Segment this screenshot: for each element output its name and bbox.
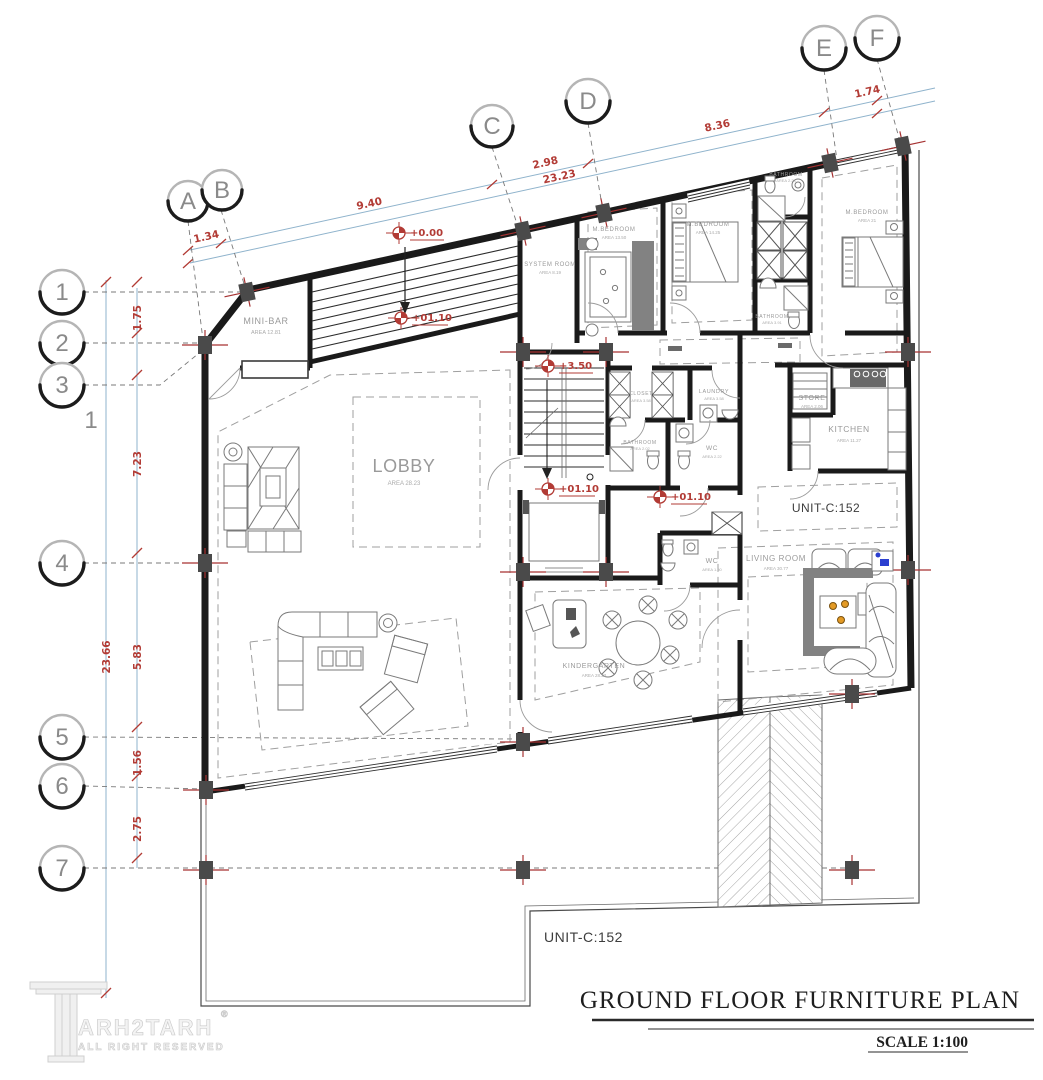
room-label-bedroom-left: M.BEDROOMAREA 13.50 <box>592 227 635 240</box>
svg-text:4: 4 <box>55 550 68 577</box>
svg-text:LIVING ROOM: LIVING ROOM <box>746 554 806 563</box>
svg-text:AREA 13.50: AREA 13.50 <box>602 235 627 240</box>
svg-text:M.BEDROOM: M.BEDROOM <box>592 227 635 233</box>
unit-label-exterior: UNIT-C:152 <box>544 929 623 945</box>
svg-text:SYSTEM ROOM: SYSTEM ROOM <box>524 262 576 268</box>
drawing-title: GROUND FLOOR FURNITURE PLAN <box>580 987 1020 1014</box>
svg-text:AREA 3.58: AREA 3.58 <box>704 396 724 401</box>
furniture-kindergarten <box>526 596 687 689</box>
svg-text:AREA 21: AREA 21 <box>858 218 877 223</box>
floor-plan-page: 1.34 9.40 2.98 23.23 8.36 1.74 1.75 7.23… <box>0 0 1043 1080</box>
svg-text:2: 2 <box>55 330 68 357</box>
grid-bubble-1: 1 <box>40 270 84 314</box>
watermark-registered: ® <box>221 1009 230 1019</box>
svg-text:M.BEDROOM: M.BEDROOM <box>686 222 729 228</box>
dim-left-12: 1.75 <box>132 305 144 331</box>
room-label-kitchen: KITCHENAREA 11.27 <box>828 424 870 443</box>
dim-left-67: 2.75 <box>132 816 144 842</box>
svg-text:1: 1 <box>55 279 68 306</box>
svg-text:+01.10: +01.10 <box>559 484 599 495</box>
dim-top-cd: 2.98 <box>531 154 559 171</box>
stair-core <box>523 368 605 572</box>
dim-top-bc: 9.40 <box>355 195 383 212</box>
svg-text:CLOSET: CLOSET <box>629 391 653 397</box>
svg-text:STORE: STORE <box>799 395 826 402</box>
room-label-wc-kinder: WCAREA 1.50 <box>702 558 722 572</box>
unit-label-interior: UNIT-C:152 <box>792 501 860 515</box>
svg-text:+01.10: +01.10 <box>671 492 711 503</box>
svg-text:+01.10: +01.10 <box>412 313 452 324</box>
grid-bubble-b: B <box>202 170 242 210</box>
svg-text:D: D <box>579 88 596 115</box>
room-label-lobby: LOBBYAREA 28.23 <box>372 456 435 487</box>
svg-text:AREA 3.58: AREA 3.58 <box>631 398 651 403</box>
svg-text:LOBBY: LOBBY <box>372 456 435 476</box>
ramp-hatch <box>718 695 822 907</box>
svg-text:7: 7 <box>55 855 68 882</box>
grid-bubble-5: 5 <box>40 715 84 759</box>
svg-text:AREA 8.19: AREA 8.19 <box>539 270 562 275</box>
grid-bubble-3: 3 <box>40 363 84 407</box>
furniture-lobby-sofa <box>224 443 301 552</box>
dim-top-ef: 1.74 <box>853 83 881 100</box>
room-label-wc-center: WCAREA 2.22 <box>702 445 722 459</box>
elevator <box>523 500 605 572</box>
exterior-stairs <box>312 246 518 349</box>
svg-text:AREA 2.23: AREA 2.23 <box>776 178 796 183</box>
svg-text:+0.00: +0.00 <box>410 228 443 239</box>
room-label-systemroom: SYSTEM ROOMAREA 8.19 <box>524 262 576 275</box>
room-label-minibar: MINI-BARAREA 12.81 <box>243 316 288 336</box>
svg-text:AREA 30.77: AREA 30.77 <box>764 566 789 571</box>
svg-text:KINDERGARTEN: KINDERGARTEN <box>563 663 626 670</box>
axis-note: 1 <box>84 407 97 434</box>
grid-bubble-d: D <box>566 79 610 123</box>
svg-text:F: F <box>870 25 885 52</box>
grid-bubble-4: 4 <box>40 541 84 585</box>
svg-text:AREA 2.22: AREA 2.22 <box>702 454 722 459</box>
svg-text:B: B <box>214 177 230 204</box>
grid-bubble-6: 6 <box>40 764 84 808</box>
furniture-minibar <box>242 361 308 378</box>
svg-text:A: A <box>180 188 196 215</box>
watermark-brand: ARH2TARH <box>78 1015 213 1040</box>
svg-text:AREA 28.23: AREA 28.23 <box>582 673 607 678</box>
svg-text:AREA 2.06: AREA 2.06 <box>801 404 824 409</box>
elevation-2: +3.50 <box>535 355 593 377</box>
svg-text:WC: WC <box>706 445 718 452</box>
dim-top-ab: 1.34 <box>192 228 220 245</box>
grid-bubble-f: F <box>855 16 899 60</box>
title-block: GROUND FLOOR FURNITURE PLAN SCALE 1:100 <box>580 987 1034 1052</box>
svg-text:E: E <box>816 35 832 62</box>
svg-text:AREA 2.02: AREA 2.02 <box>630 446 650 451</box>
svg-text:5: 5 <box>55 724 68 751</box>
elevation-0: +0.00 <box>386 222 444 244</box>
watermark-logo: ARH2TARH ® ALL RIGHT RESERVED <box>30 982 230 1062</box>
svg-text:+3.50: +3.50 <box>559 361 592 372</box>
elevation-3: +01.10 <box>535 478 599 500</box>
svg-text:AREA 11.27: AREA 11.27 <box>837 438 862 443</box>
room-label-laundry: LAUNDRYAREA 3.58 <box>699 389 729 401</box>
svg-text:LAUNDRY: LAUNDRY <box>699 389 729 395</box>
dim-left-34: 7.23 <box>132 451 144 477</box>
svg-text:AREA 14.25: AREA 14.25 <box>696 230 721 235</box>
furniture-bed-right <box>842 221 903 303</box>
room-label-bathroom-right: BATHROOMAREA 3.91 <box>755 314 788 325</box>
elevation-1: +01.10 <box>388 307 452 329</box>
grid-bubble-e: E <box>802 26 846 70</box>
room-label-bedroom-right: M.BEDROOMAREA 21 <box>845 210 888 223</box>
svg-text:AREA 3.91: AREA 3.91 <box>762 320 782 325</box>
furniture-kitchen <box>792 368 906 470</box>
furniture-l-sofa <box>278 612 428 735</box>
svg-text:M.BEDROOM: M.BEDROOM <box>845 210 888 216</box>
dim-left-56: 1.56 <box>132 750 144 776</box>
grid-bubble-2: 2 <box>40 321 84 365</box>
grid-bubble-7: 7 <box>40 846 84 890</box>
room-label-closet: CLOSETAREA 3.58 <box>629 391 653 403</box>
svg-text:C: C <box>483 113 500 140</box>
dim-left-45: 5.83 <box>132 644 144 670</box>
furniture-living-room <box>803 549 896 677</box>
watermark-tagline: ALL RIGHT RESERVED <box>78 1042 225 1053</box>
floor-plan-canvas: 1.34 9.40 2.98 23.23 8.36 1.74 1.75 7.23… <box>0 0 1043 1080</box>
grid-bubble-c: C <box>471 105 513 147</box>
room-label-livingroom: LIVING ROOMAREA 30.77 <box>746 554 806 571</box>
svg-text:MINI-BAR: MINI-BAR <box>243 316 288 326</box>
dim-left-overall: 23.66 <box>101 640 113 673</box>
svg-text:WC: WC <box>706 558 719 565</box>
svg-text:AREA 12.81: AREA 12.81 <box>251 330 281 336</box>
svg-text:3: 3 <box>55 372 68 399</box>
furniture-bed-mid <box>672 204 738 300</box>
svg-text:6: 6 <box>55 773 68 800</box>
dim-top-overall: 23.23 <box>542 168 577 187</box>
svg-text:AREA 1.50: AREA 1.50 <box>702 567 722 572</box>
dim-top-de: 8.36 <box>703 117 731 134</box>
svg-text:AREA 28.23: AREA 28.23 <box>388 481 421 487</box>
drawing-scale: SCALE 1:100 <box>876 1034 968 1051</box>
svg-text:KITCHEN: KITCHEN <box>828 424 870 434</box>
